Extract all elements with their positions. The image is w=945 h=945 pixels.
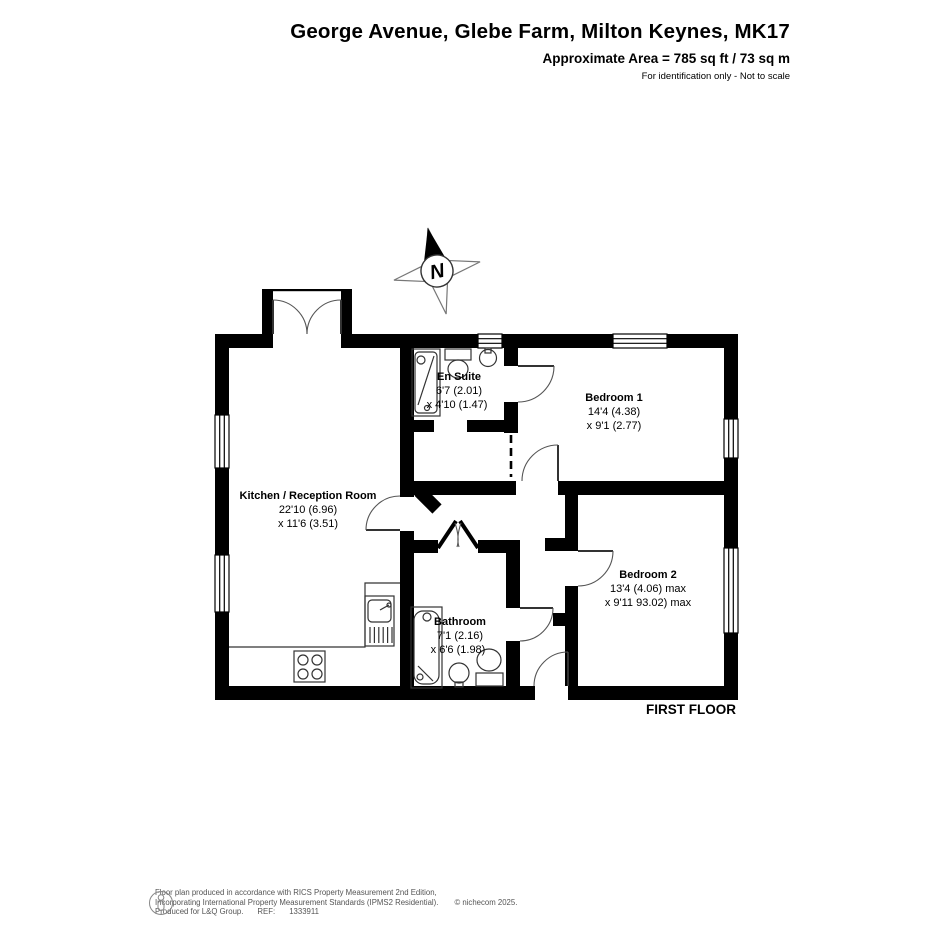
entrance-door bbox=[534, 652, 568, 686]
floor-label: FIRST FLOOR bbox=[646, 702, 736, 717]
label-bedroom2: Bedroom 2 13'4 (4.06) max x 9'11 93.02) … bbox=[605, 569, 692, 609]
label-ensuite: En Suite 6'7 (2.01) x 4'10 (1.47) bbox=[427, 371, 488, 411]
floor-plan-drawing: N bbox=[0, 0, 945, 945]
svg-text:En Suite: En Suite bbox=[437, 371, 481, 383]
svg-text:14'4 (4.38): 14'4 (4.38) bbox=[588, 406, 640, 418]
window-right-bedroom1 bbox=[724, 419, 738, 458]
svg-text:x 9'11 93.02) max: x 9'11 93.02) max bbox=[605, 597, 692, 609]
window-right-bedroom2 bbox=[724, 548, 738, 633]
footer: Floor plan produced in accordance with R… bbox=[148, 888, 517, 917]
footer-line1: Floor plan produced in accordance with R… bbox=[155, 888, 517, 898]
label-bedroom1: Bedroom 1 14'4 (4.38) x 9'1 (2.77) bbox=[585, 392, 642, 432]
svg-text:Bedroom 1: Bedroom 1 bbox=[585, 392, 642, 404]
svg-text:x 4'10 (1.47): x 4'10 (1.47) bbox=[427, 399, 488, 411]
window-left-2 bbox=[215, 555, 229, 612]
bathroom-door bbox=[520, 608, 553, 641]
copyright: © nichecom 2025. bbox=[454, 898, 517, 907]
label-kitchen: Kitchen / Reception Room 22'10 (6.96) x … bbox=[240, 490, 377, 530]
kitchen-sink bbox=[365, 596, 394, 646]
footer-line3: Produced for L&Q Group.REF:1333911 bbox=[155, 907, 517, 917]
svg-text:x 11'6 (3.51): x 11'6 (3.51) bbox=[278, 518, 338, 530]
ref-label: REF: bbox=[257, 907, 275, 916]
room-labels: Kitchen / Reception Room 22'10 (6.96) x … bbox=[240, 371, 692, 656]
nichecom-logo-icon bbox=[148, 888, 175, 918]
footer-text: Floor plan produced in accordance with R… bbox=[155, 888, 517, 917]
svg-text:6'7 (2.01): 6'7 (2.01) bbox=[436, 385, 482, 397]
kitchen-hob bbox=[294, 651, 325, 682]
french-doors bbox=[273, 300, 341, 334]
svg-text:x 9'1 (2.77): x 9'1 (2.77) bbox=[587, 420, 642, 432]
window-top-bedroom1 bbox=[613, 334, 667, 348]
ref-value: 1333911 bbox=[289, 907, 319, 916]
label-bathroom: Bathroom 7'1 (2.16) x 6'6 (1.98) bbox=[431, 616, 487, 656]
cupboard-bifold-doors bbox=[438, 521, 478, 548]
floorplan-page: George Avenue, Glebe Farm, Milton Keynes… bbox=[0, 0, 945, 945]
svg-text:7'1 (2.16): 7'1 (2.16) bbox=[437, 630, 483, 642]
svg-text:Bathroom: Bathroom bbox=[434, 616, 486, 628]
svg-text:Kitchen / Reception Room: Kitchen / Reception Room bbox=[240, 490, 377, 502]
svg-text:22'10 (6.96): 22'10 (6.96) bbox=[279, 504, 337, 516]
window-top-ensuite bbox=[478, 334, 502, 348]
svg-text:13'4 (4.06) max: 13'4 (4.06) max bbox=[610, 583, 687, 595]
svg-text:Bedroom 2: Bedroom 2 bbox=[619, 569, 676, 581]
footer-line2: Incorporating International Property Mea… bbox=[155, 898, 517, 908]
bedroom1-door bbox=[522, 445, 558, 481]
ensuite-door bbox=[518, 366, 554, 402]
ensuite-basin bbox=[480, 348, 497, 367]
bedroom2-door bbox=[578, 551, 613, 586]
bathroom-basin bbox=[449, 663, 469, 687]
window-left-1 bbox=[215, 415, 229, 468]
svg-text:x 6'6 (1.98): x 6'6 (1.98) bbox=[431, 644, 486, 656]
compass-icon: N bbox=[385, 219, 489, 323]
